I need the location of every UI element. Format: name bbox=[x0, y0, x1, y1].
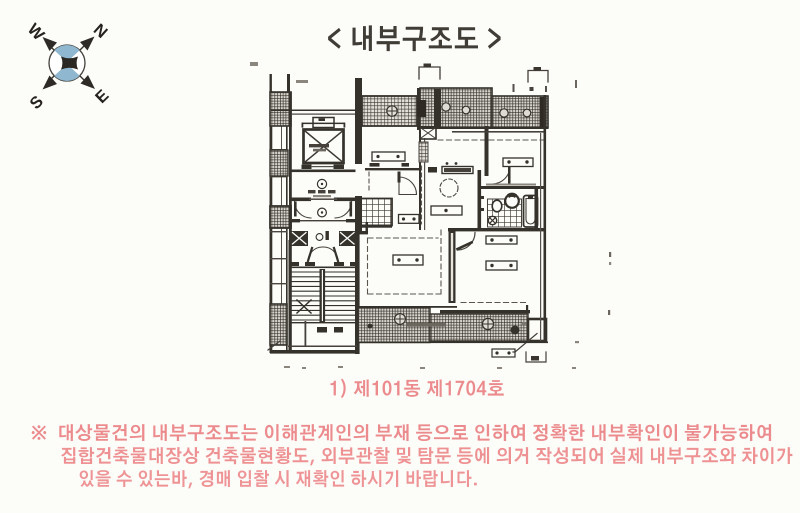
svg-text:E: E bbox=[92, 86, 112, 107]
svg-text:W: W bbox=[24, 20, 48, 44]
svg-text:S: S bbox=[26, 92, 47, 113]
